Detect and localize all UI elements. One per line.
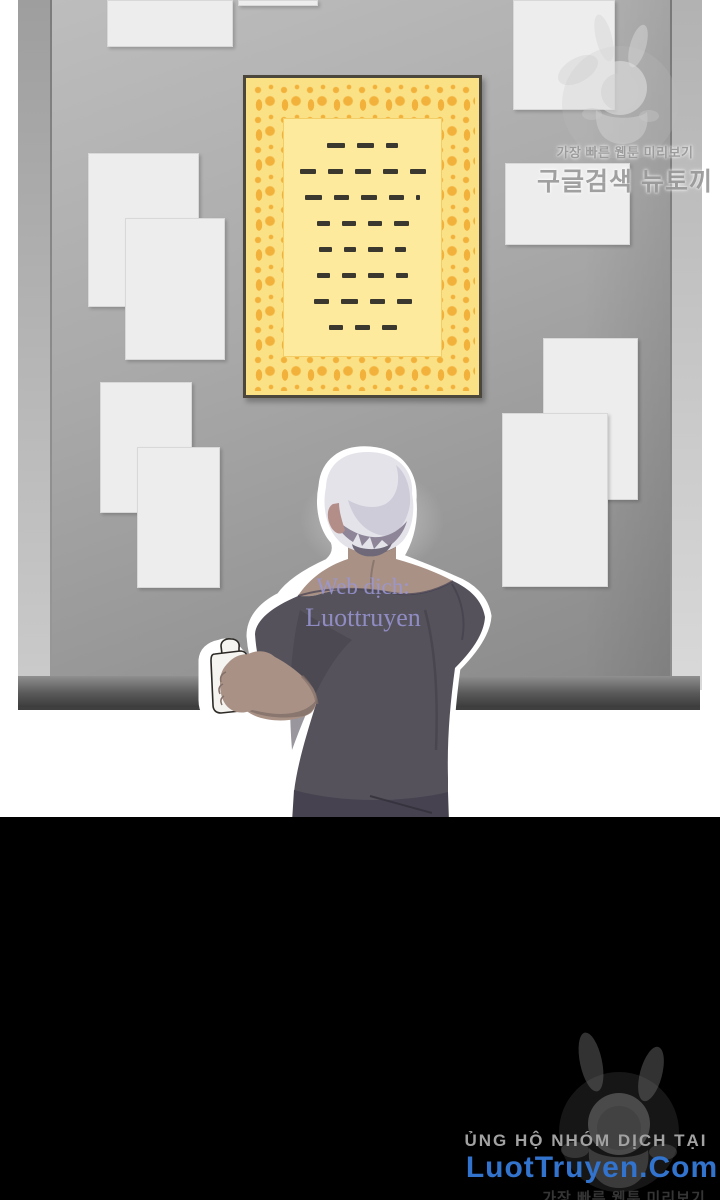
redacted-text-row (300, 169, 426, 174)
footer-faint-watermark: 가장 빠른 웹툰 미리보기 (542, 1187, 706, 1200)
redacted-text-dash (383, 169, 398, 174)
pinned-paper (125, 218, 225, 360)
notice-poster (243, 75, 482, 398)
redacted-text-row (327, 143, 398, 148)
redacted-text-row (319, 247, 406, 252)
redacted-text-row (329, 325, 397, 330)
redacted-text-dash (328, 169, 343, 174)
redacted-text-dash (396, 273, 408, 278)
redacted-text-dash (368, 247, 383, 252)
watermark-translator-line1: Web dịch: (305, 574, 421, 600)
redacted-text-dash (319, 247, 332, 252)
footer-panel: ỦNG HỘ NHÓM DỊCH TẠI LuotTruyen.Com 가장 빠… (0, 817, 720, 1200)
pinned-paper (107, 0, 233, 47)
redacted-text-row (317, 221, 409, 226)
redacted-text-dash (344, 247, 356, 252)
redacted-text-dash (368, 273, 384, 278)
bunny-mascot-watermark-icon (548, 8, 698, 158)
redacted-text-dash (368, 221, 382, 226)
redacted-text-dash (329, 325, 343, 330)
redacted-text-dash (355, 325, 370, 330)
redacted-text-dash (357, 143, 374, 148)
redacted-text-dash (416, 195, 420, 200)
redacted-text-dash (386, 143, 398, 148)
comic-page: 가장 빠른 웹툰 미리보기 구글검색 뉴토끼 (0, 0, 720, 1200)
poster-text-area (283, 118, 442, 357)
footer-site-name: LuotTruyen.Com (466, 1151, 718, 1185)
redacted-text-dash (410, 169, 426, 174)
watermark-translator-line2: Luottruyen (305, 603, 421, 633)
watermark-top-line1: 가장 빠른 웹툰 미리보기 (537, 142, 713, 161)
redacted-text-dash (389, 195, 404, 200)
redacted-text-dash (395, 247, 406, 252)
redacted-text-dash (342, 221, 356, 226)
redacted-text-dash (397, 299, 412, 304)
redacted-text-dash (382, 325, 397, 330)
redacted-text-dash (317, 273, 330, 278)
redacted-text-row (314, 299, 412, 304)
redacted-text-dash (361, 195, 377, 200)
watermark-translator: Web dịch: Luottruyen (305, 574, 421, 633)
redacted-text-row (305, 195, 420, 200)
redacted-text-dash (394, 221, 409, 226)
pinned-paper (238, 0, 318, 6)
watermark-top-line2: 구글검색 뉴토끼 (537, 162, 713, 198)
redacted-text-dash (370, 299, 385, 304)
watermark-top: 가장 빠른 웹툰 미리보기 구글검색 뉴토끼 (537, 142, 713, 198)
redacted-text-dash (314, 299, 329, 304)
pinned-paper (502, 413, 608, 587)
redacted-text-dash (341, 299, 358, 304)
redacted-text-row (317, 273, 408, 278)
redacted-text-dash (334, 195, 349, 200)
redacted-text-dash (305, 195, 322, 200)
redacted-text-dash (355, 169, 371, 174)
footer-support-text: ỦNG HỘ NHÓM DỊCH TẠI (464, 1131, 707, 1151)
redacted-text-dash (342, 273, 356, 278)
redacted-text-dash (317, 221, 330, 226)
redacted-text-dash (327, 143, 345, 148)
redacted-text-dash (300, 169, 316, 174)
